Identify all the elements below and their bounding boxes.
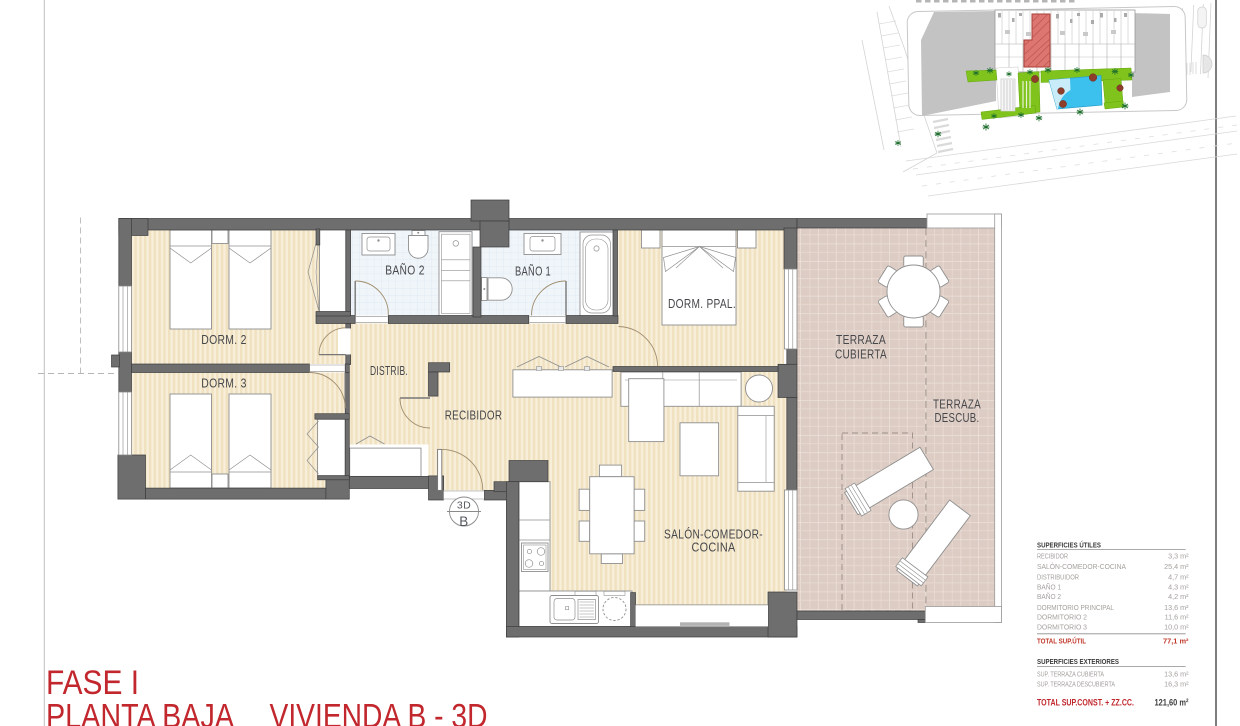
- svg-text:4,3 m²: 4,3 m²: [1168, 583, 1189, 592]
- svg-text:COCINA: COCINA: [692, 540, 736, 555]
- svg-text:DORM. PPAL.: DORM. PPAL.: [668, 296, 736, 311]
- svg-text:11,6 m²: 11,6 m²: [1165, 613, 1189, 622]
- svg-text:FASE I: FASE I: [46, 664, 139, 702]
- svg-text:4,7 m²: 4,7 m²: [1168, 573, 1189, 582]
- svg-text:DISTRIBUIDOR: DISTRIBUIDOR: [1037, 573, 1079, 582]
- svg-text:PLANTA BAJA: PLANTA BAJA: [46, 698, 234, 726]
- svg-text:RECIBIDOR: RECIBIDOR: [1037, 552, 1068, 561]
- svg-text:DORMITORIO 3: DORMITORIO 3: [1037, 623, 1087, 632]
- svg-text:13,6 m²: 13,6 m²: [1164, 603, 1189, 612]
- svg-text:13,6 m²: 13,6 m²: [1164, 670, 1189, 679]
- svg-text:TOTAL SUP.ÚTIL: TOTAL SUP.ÚTIL: [1037, 637, 1086, 646]
- svg-text:SUPERFICIES EXTERIORES: SUPERFICIES EXTERIORES: [1037, 657, 1119, 666]
- svg-text:DORM. 3: DORM. 3: [201, 376, 247, 391]
- svg-text:BAÑO 1: BAÑO 1: [515, 264, 551, 279]
- svg-text:BAÑO 2: BAÑO 2: [385, 263, 425, 278]
- svg-text:SUP. TERRAZA CUBIERTA: SUP. TERRAZA CUBIERTA: [1037, 670, 1104, 679]
- svg-text:16,3 m²: 16,3 m²: [1164, 679, 1189, 688]
- svg-text:CUBIERTA: CUBIERTA: [835, 347, 887, 362]
- svg-text:121,60 m²: 121,60 m²: [1155, 698, 1189, 708]
- svg-text:SALÓN-COMEDOR-COCINA: SALÓN-COMEDOR-COCINA: [1037, 562, 1126, 571]
- svg-text:BAÑO 2: BAÑO 2: [1037, 592, 1061, 601]
- svg-text:SUPERFICIES ÚTILES: SUPERFICIES ÚTILES: [1037, 541, 1101, 550]
- svg-text:VIVIENDA B - 3D: VIVIENDA B - 3D: [270, 698, 488, 726]
- svg-text:77,1 m²: 77,1 m²: [1163, 637, 1189, 646]
- svg-text:TERRAZA: TERRAZA: [836, 332, 886, 347]
- svg-text:DISTRIB.: DISTRIB.: [370, 363, 408, 378]
- svg-text:DORMITORIO PRINCIPAL: DORMITORIO PRINCIPAL: [1037, 603, 1114, 612]
- svg-text:B: B: [459, 514, 468, 529]
- svg-text:10,0 m²: 10,0 m²: [1164, 623, 1189, 632]
- svg-text:RECIBIDOR: RECIBIDOR: [445, 408, 503, 423]
- svg-text:3D: 3D: [457, 500, 471, 512]
- svg-text:DORM. 2: DORM. 2: [201, 332, 247, 347]
- svg-text:TOTAL SUP.CONST. + ZZ.CC.: TOTAL SUP.CONST. + ZZ.CC.: [1037, 698, 1134, 708]
- svg-text:4,2 m²: 4,2 m²: [1168, 592, 1189, 601]
- svg-text:DESCUB.: DESCUB.: [935, 410, 980, 425]
- svg-text:3,3 m²: 3,3 m²: [1168, 552, 1189, 561]
- svg-text:DORMITORIO 2: DORMITORIO 2: [1037, 613, 1087, 622]
- svg-text:25,4 m²: 25,4 m²: [1164, 562, 1189, 571]
- svg-text:BAÑO 1: BAÑO 1: [1037, 583, 1061, 592]
- svg-text:SUP. TERRAZA DESCUBIERTA: SUP. TERRAZA DESCUBIERTA: [1037, 679, 1115, 688]
